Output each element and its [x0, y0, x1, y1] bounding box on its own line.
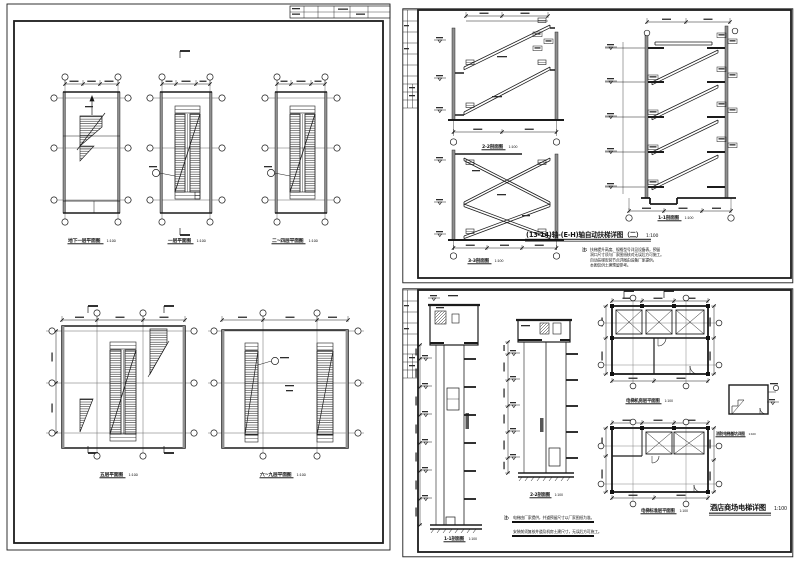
pit-detail-plan: 消防电梯基坑详图1:100 — [716, 383, 780, 437]
elevator-details-sheet: 1-1剖面图1:1002-2剖面图1:100电梯机房层平面图1:100电梯标准层… — [402, 288, 794, 558]
section-1-1: 1-1剖面图1:100 — [605, 18, 738, 221]
notes-label: 注: — [504, 515, 510, 520]
standard-floor-plan: 电梯标准层平面图1:100 — [598, 419, 722, 514]
sheet-border — [403, 289, 793, 557]
scale-label: 1:100 — [665, 399, 673, 403]
escalator-plans-sheet: 地下一层平面图1:100一层平面图1:100二~四层平面图1:100五层平面图1… — [6, 3, 391, 551]
title-strip — [403, 10, 418, 108]
elevator-section-1-1-caption: 1-1剖面图 — [444, 535, 465, 542]
plan-levels2-4-caption: 二~四层平面图 — [272, 237, 304, 244]
plan-basement: 地下一层平面图1:100 — [50, 74, 132, 244]
section-3-3-caption: 3-3剖面图 — [468, 257, 489, 264]
section-1-1-caption: 1-1剖面图 — [658, 214, 679, 221]
scale-label: 1:100 — [749, 432, 756, 436]
sheet-title: (13-14)轴-(E-H)轴自动扶梯详图（二） — [526, 230, 642, 239]
note-line: 本图仅供土建预留参考。 — [590, 263, 631, 268]
sheet-title-area: (13-14)轴-(E-H)轴自动扶梯详图（二）1:100 — [525, 230, 659, 242]
scale-label: 1:100 — [309, 239, 319, 243]
section-2-2-caption: 2-2剖面图 — [482, 143, 503, 150]
plan-level1: 一层平面图1:100 — [146, 51, 226, 244]
plan-level5-caption: 五层平面图 — [100, 471, 123, 478]
scale-label: 1:100 — [197, 239, 207, 243]
elevator-section-2-2: 2-2剖面图1:100 — [503, 320, 578, 498]
plan-levels6-9: 六~九层平面图1:100 — [208, 310, 364, 478]
scale-label: 1:100 — [107, 239, 117, 243]
scale-label: 1:100 — [495, 259, 504, 263]
title-block — [290, 6, 390, 18]
escalator-sections-sheet: 2-2剖面图1:1003-3剖面图1:1001-1剖面图1:100(13-14)… — [402, 8, 794, 284]
title-strip — [403, 290, 418, 378]
machine-room-plan: 电梯机房层平面图1:100 — [598, 291, 722, 404]
sheet-border — [403, 9, 793, 283]
cad-blueprint-canvas: 地下一层平面图1:100一层平面图1:100二~四层平面图1:100五层平面图1… — [0, 0, 800, 566]
elevator-section-2-2-caption: 2-2剖面图 — [530, 491, 551, 498]
scale-label: 1:100 — [129, 473, 139, 477]
note-line: 安装前须复核井道及机房土建尺寸，无误后方可施工。 — [513, 529, 602, 534]
plan-levels2-4: 二~四层平面图1:100 — [261, 74, 341, 244]
sheet-title-scale: 1:100 — [774, 506, 787, 512]
section-2-2: 2-2剖面图1:100 — [434, 12, 564, 150]
notes-area: 注:电梯由厂家提供，井道预留尺寸以厂家图纸为准。安装前须复核井道及机房土建尺寸，… — [504, 515, 602, 537]
sheet-title-area: 酒店商场电梯详图1:100 — [709, 503, 787, 516]
notes-area: 注:扶梯提升高度、规格型号详见设备表，预留洞口尺寸须与厂家图纸核对无误后方可施工… — [582, 246, 664, 268]
notes-label: 注: — [582, 246, 588, 252]
elevator-section-1-1: 1-1剖面图1:100 — [415, 295, 482, 542]
standard-floor-plan-caption: 电梯标准层平面图 — [641, 507, 675, 514]
scale-label: 1:100 — [680, 509, 688, 513]
scale-label: 1:100 — [297, 473, 307, 477]
plan-levels6-9-caption: 六~九层平面图 — [260, 471, 292, 478]
scale-label: 1:100 — [555, 493, 563, 497]
sheet-border — [7, 4, 390, 550]
note-line: 电梯由厂家提供，井道预留尺寸以厂家图纸为准。 — [513, 515, 594, 520]
sheet-title-scale: 1:100 — [646, 233, 659, 239]
scale-label: 1:100 — [509, 145, 518, 149]
plan-basement-caption: 地下一层平面图 — [68, 237, 101, 244]
plan-level1-caption: 一层平面图 — [168, 237, 191, 244]
scale-label: 1:100 — [685, 216, 694, 220]
scale-label: 1:100 — [469, 537, 477, 541]
section-3-3: 3-3剖面图1:100 — [434, 150, 564, 264]
sheet-title: 酒店商场电梯详图 — [710, 503, 766, 512]
pit-detail-caption: 消防电梯基坑详图 — [716, 431, 745, 436]
plan-level5: 五层平面图1:100 — [46, 306, 198, 478]
machine-room-plan-caption: 电梯机房层平面图 — [626, 397, 660, 404]
